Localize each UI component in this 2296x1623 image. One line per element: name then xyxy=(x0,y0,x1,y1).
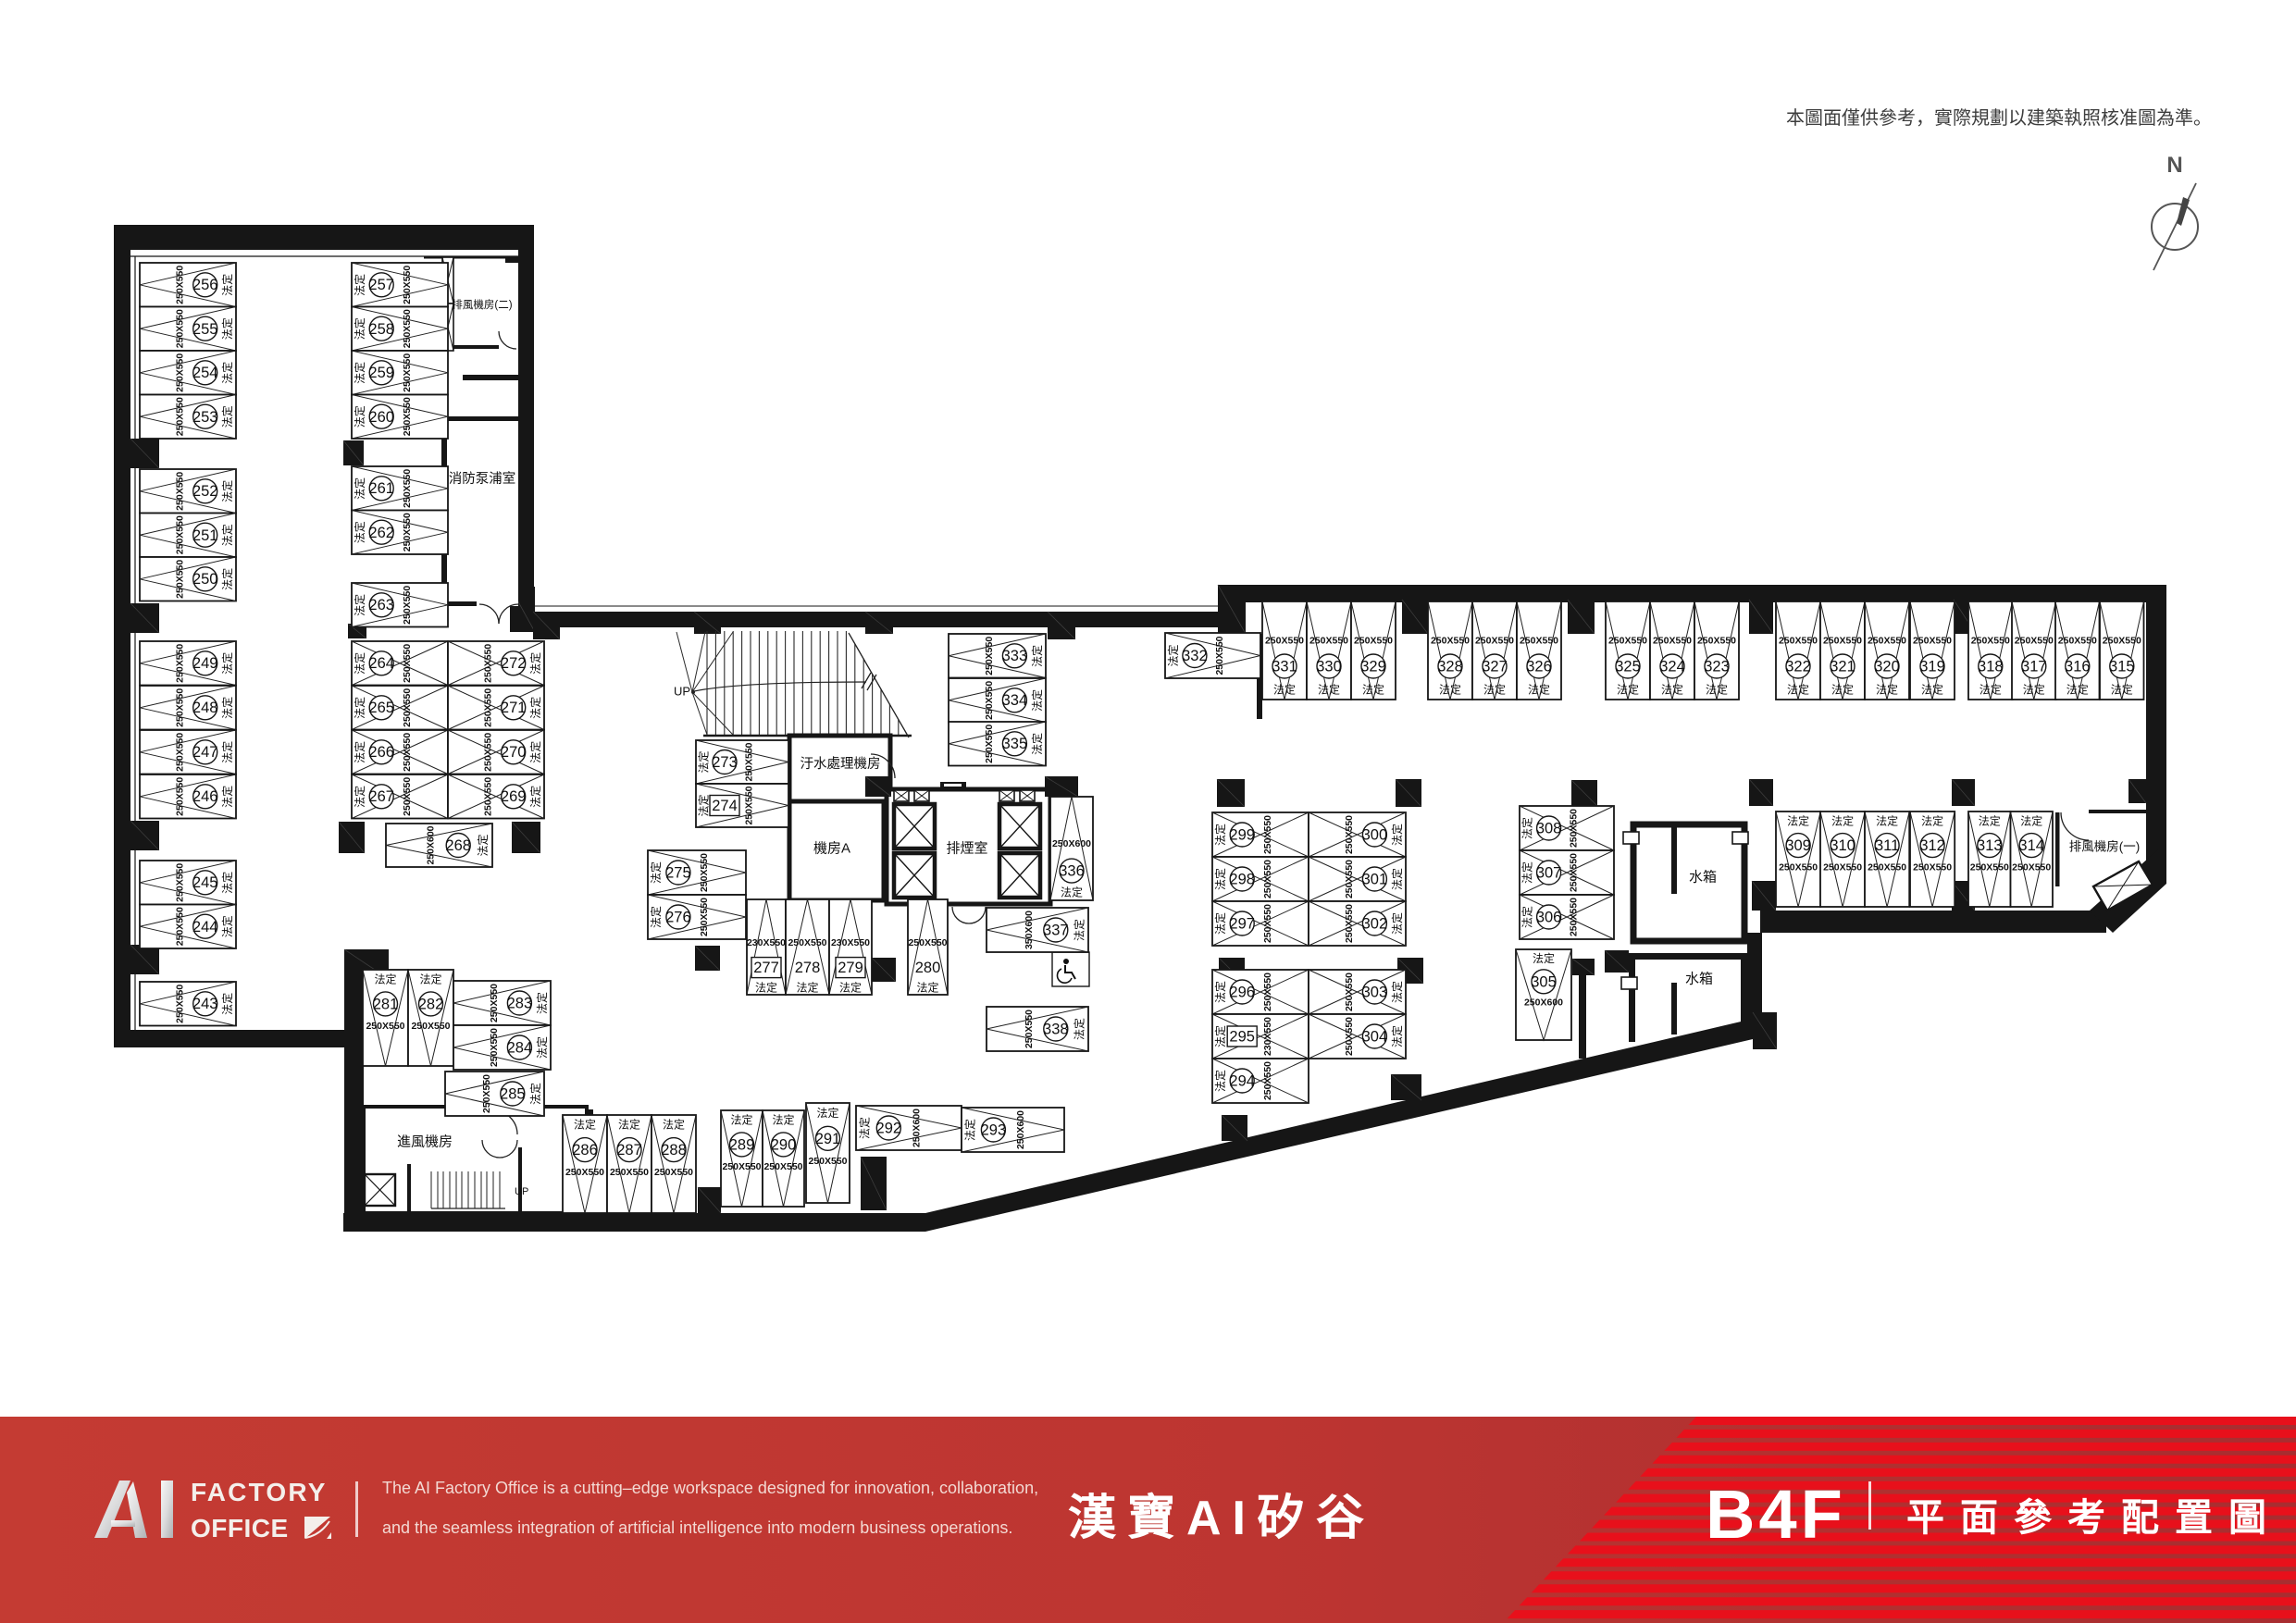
svg-text:317: 317 xyxy=(2021,659,2047,675)
svg-text:251: 251 xyxy=(192,527,218,544)
svg-text:法定: 法定 xyxy=(1273,682,1296,696)
svg-text:法定: 法定 xyxy=(1980,682,2002,696)
svg-text:法定: 法定 xyxy=(528,652,542,675)
svg-text:250X550: 250X550 xyxy=(402,688,413,727)
svg-text:法定: 法定 xyxy=(535,992,549,1014)
svg-text:法定: 法定 xyxy=(353,362,366,384)
svg-text:310: 310 xyxy=(1830,837,1855,854)
svg-text:250X550: 250X550 xyxy=(1653,635,1692,646)
svg-text:295: 295 xyxy=(1229,1029,1255,1046)
svg-text:法定: 法定 xyxy=(1390,868,1404,890)
svg-text:法定: 法定 xyxy=(220,405,234,427)
svg-text:291: 291 xyxy=(815,1131,841,1147)
svg-text:250X550: 250X550 xyxy=(402,469,413,508)
svg-text:323: 323 xyxy=(1704,659,1730,675)
svg-text:258: 258 xyxy=(368,321,394,338)
svg-text:法定: 法定 xyxy=(1876,682,1898,696)
svg-text:332: 332 xyxy=(1182,648,1208,664)
svg-text:250X550: 250X550 xyxy=(366,1021,404,1032)
svg-text:268: 268 xyxy=(445,837,471,854)
svg-text:法定: 法定 xyxy=(1831,813,1854,827)
svg-text:250X550: 250X550 xyxy=(1520,635,1558,646)
svg-text:法定: 法定 xyxy=(1061,886,1083,899)
svg-text:296: 296 xyxy=(1229,985,1255,1001)
svg-text:法定: 法定 xyxy=(353,274,366,296)
svg-text:250X550: 250X550 xyxy=(1569,853,1580,892)
svg-text:法定: 法定 xyxy=(353,477,366,500)
svg-text:250X550: 250X550 xyxy=(1262,1061,1273,1100)
svg-text:338: 338 xyxy=(1043,1022,1069,1038)
svg-text:250X550: 250X550 xyxy=(175,472,186,511)
svg-text:250: 250 xyxy=(192,571,218,588)
svg-text:法定: 法定 xyxy=(1921,682,1943,696)
svg-text:250X550: 250X550 xyxy=(984,637,995,675)
svg-text:250X550: 250X550 xyxy=(483,777,494,816)
svg-text:292: 292 xyxy=(876,1121,902,1137)
svg-text:法定: 法定 xyxy=(528,741,542,763)
svg-text:301: 301 xyxy=(1362,872,1388,888)
svg-text:266: 266 xyxy=(368,744,394,761)
svg-text:法定: 法定 xyxy=(220,317,234,340)
svg-text:316: 316 xyxy=(2065,659,2091,675)
svg-text:法定: 法定 xyxy=(1213,824,1227,846)
svg-text:254: 254 xyxy=(192,365,218,381)
svg-text:法定: 法定 xyxy=(1617,682,1639,696)
svg-text:法定: 法定 xyxy=(220,362,234,384)
svg-text:法定: 法定 xyxy=(1921,813,1943,827)
svg-text:法定: 法定 xyxy=(916,980,938,994)
svg-text:250X550: 250X550 xyxy=(402,513,413,551)
svg-text:250X550: 250X550 xyxy=(489,1028,500,1067)
svg-text:250X550: 250X550 xyxy=(402,777,413,816)
svg-text:250X550: 250X550 xyxy=(175,515,186,554)
svg-text:250X550: 250X550 xyxy=(175,777,186,816)
svg-text:法定: 法定 xyxy=(1439,682,1461,696)
svg-text:286: 286 xyxy=(572,1142,598,1158)
svg-text:350X600: 350X600 xyxy=(1024,911,1035,949)
svg-text:水箱: 水箱 xyxy=(1689,870,1717,886)
svg-text:法定: 法定 xyxy=(353,594,366,616)
svg-text:法定: 法定 xyxy=(1831,682,1854,696)
svg-text:法定: 法定 xyxy=(353,405,366,427)
svg-text:302: 302 xyxy=(1362,916,1388,933)
svg-text:250X550: 250X550 xyxy=(1344,860,1355,898)
svg-text:306: 306 xyxy=(1536,910,1562,926)
svg-text:法定: 法定 xyxy=(1030,645,1044,667)
svg-text:法定: 法定 xyxy=(220,697,234,719)
svg-text:250X550: 250X550 xyxy=(175,309,186,348)
svg-text:250X550: 250X550 xyxy=(788,937,826,948)
svg-text:250X550: 250X550 xyxy=(1475,635,1514,646)
svg-text:280: 280 xyxy=(915,960,941,976)
svg-text:325: 325 xyxy=(1615,659,1641,675)
svg-text:法定: 法定 xyxy=(858,1117,872,1139)
svg-text:機房A: 機房A xyxy=(813,841,850,857)
svg-text:法定: 法定 xyxy=(1166,644,1180,666)
svg-text:312: 312 xyxy=(1919,837,1945,854)
svg-text:247: 247 xyxy=(192,744,218,761)
svg-text:249: 249 xyxy=(192,655,218,672)
svg-text:法定: 法定 xyxy=(772,1112,794,1126)
svg-text:320: 320 xyxy=(1874,659,1900,675)
svg-text:250X550: 250X550 xyxy=(483,644,494,683)
svg-text:250X550: 250X550 xyxy=(1262,973,1273,1011)
svg-text:法定: 法定 xyxy=(1390,981,1404,1003)
svg-text:250X550: 250X550 xyxy=(808,1156,847,1167)
svg-text:法定: 法定 xyxy=(1073,919,1086,941)
svg-text:法定: 法定 xyxy=(649,861,663,884)
svg-text:法定: 法定 xyxy=(1520,817,1534,839)
svg-text:250X550: 250X550 xyxy=(1823,861,1862,873)
svg-text:250X550: 250X550 xyxy=(2058,635,2097,646)
svg-text:法定: 法定 xyxy=(1030,689,1044,712)
svg-text:法定: 法定 xyxy=(220,741,234,763)
svg-text:法定: 法定 xyxy=(220,915,234,937)
svg-text:250X550: 250X550 xyxy=(1569,898,1580,936)
svg-text:250X550: 250X550 xyxy=(984,681,995,720)
svg-text:250X550: 250X550 xyxy=(1344,904,1355,943)
svg-text:法定: 法定 xyxy=(535,1036,549,1059)
svg-text:250X550: 250X550 xyxy=(1214,636,1225,675)
svg-text:法定: 法定 xyxy=(796,980,818,994)
svg-text:256: 256 xyxy=(192,277,218,293)
svg-text:法定: 法定 xyxy=(353,521,366,543)
svg-text:250X550: 250X550 xyxy=(402,309,413,348)
svg-text:法定: 法定 xyxy=(1390,824,1404,846)
svg-text:250X550: 250X550 xyxy=(908,937,947,948)
svg-text:法定: 法定 xyxy=(220,274,234,296)
svg-text:250X550: 250X550 xyxy=(1970,861,2009,873)
svg-text:334: 334 xyxy=(1002,692,1028,709)
svg-text:法定: 法定 xyxy=(476,834,490,856)
svg-text:本圖面僅供參考，實際規劃以建築執照核准圖為準。: 本圖面僅供參考，實際規劃以建築執照核准圖為準。 xyxy=(1786,107,2212,129)
svg-text:257: 257 xyxy=(368,277,394,293)
svg-text:法定: 法定 xyxy=(1213,868,1227,890)
svg-text:298: 298 xyxy=(1229,872,1255,888)
svg-text:250X550: 250X550 xyxy=(2015,635,2054,646)
svg-text:319: 319 xyxy=(1919,659,1945,675)
svg-text:314: 314 xyxy=(2018,837,2044,854)
svg-text:消防泵浦室: 消防泵浦室 xyxy=(449,471,516,487)
svg-text:330: 330 xyxy=(1316,659,1342,675)
svg-text:263: 263 xyxy=(368,597,394,613)
svg-text:法定: 法定 xyxy=(220,568,234,590)
svg-text:250X550: 250X550 xyxy=(402,644,413,683)
svg-text:250X550: 250X550 xyxy=(175,985,186,1023)
svg-text:261: 261 xyxy=(368,480,394,497)
svg-text:250X550: 250X550 xyxy=(1697,635,1736,646)
svg-text:250X550: 250X550 xyxy=(763,1161,802,1172)
svg-text:294: 294 xyxy=(1229,1073,1255,1090)
svg-text:250X550: 250X550 xyxy=(175,560,186,599)
svg-text:287: 287 xyxy=(616,1142,642,1158)
svg-text:250X550: 250X550 xyxy=(1913,861,1952,873)
svg-text:273: 273 xyxy=(712,754,738,771)
svg-text:法定: 法定 xyxy=(528,697,542,719)
svg-text:250X600: 250X600 xyxy=(1015,1110,1026,1149)
svg-text:250X550: 250X550 xyxy=(699,898,710,936)
svg-text:311: 311 xyxy=(1875,837,1899,854)
svg-text:252: 252 xyxy=(192,483,218,500)
svg-text:法定: 法定 xyxy=(816,1106,838,1120)
svg-text:335: 335 xyxy=(1002,736,1028,752)
svg-text:250X550: 250X550 xyxy=(1024,1010,1035,1048)
svg-text:250X550: 250X550 xyxy=(402,353,413,392)
svg-text:法定: 法定 xyxy=(1213,1070,1227,1092)
svg-text:法定: 法定 xyxy=(2023,682,2045,696)
svg-text:法定: 法定 xyxy=(2111,682,2133,696)
svg-text:250X550: 250X550 xyxy=(402,266,413,304)
svg-text:250X550: 250X550 xyxy=(1569,809,1580,848)
svg-text:法定: 法定 xyxy=(2066,682,2089,696)
svg-text:279: 279 xyxy=(838,960,863,976)
svg-text:N: N xyxy=(2166,153,2182,178)
svg-text:法定: 法定 xyxy=(220,993,234,1015)
svg-text:法定: 法定 xyxy=(1390,912,1404,935)
svg-text:318: 318 xyxy=(1978,659,2004,675)
svg-text:250X550: 250X550 xyxy=(1779,635,1818,646)
svg-text:271: 271 xyxy=(501,700,527,716)
svg-text:250X550: 250X550 xyxy=(2012,861,2051,873)
svg-text:法定: 法定 xyxy=(528,1083,542,1105)
svg-text:250X550: 250X550 xyxy=(175,397,186,436)
svg-text:250X550: 250X550 xyxy=(175,733,186,772)
svg-text:法定: 法定 xyxy=(353,786,366,808)
svg-text:336: 336 xyxy=(1059,863,1085,880)
svg-text:250X550: 250X550 xyxy=(1354,635,1393,646)
svg-text:313: 313 xyxy=(1977,837,2003,854)
svg-text:250X550: 250X550 xyxy=(744,742,755,781)
svg-text:法定: 法定 xyxy=(374,972,396,985)
svg-text:269: 269 xyxy=(501,788,527,805)
svg-text:法定: 法定 xyxy=(220,786,234,808)
svg-text:250X550: 250X550 xyxy=(1913,635,1952,646)
svg-text:250X550: 250X550 xyxy=(175,353,186,392)
svg-text:250X550: 250X550 xyxy=(1868,861,1906,873)
svg-text:法定: 法定 xyxy=(1318,682,1340,696)
svg-text:排煙室: 排煙室 xyxy=(946,841,987,857)
svg-text:288: 288 xyxy=(661,1142,687,1158)
svg-text:法定: 法定 xyxy=(220,652,234,675)
svg-text:250X550: 250X550 xyxy=(610,1167,649,1178)
svg-text:250X550: 250X550 xyxy=(175,266,186,304)
svg-text:283: 283 xyxy=(507,996,533,1012)
svg-text:304: 304 xyxy=(1362,1029,1388,1046)
svg-text:250X550: 250X550 xyxy=(411,1021,450,1032)
svg-text:250X550: 250X550 xyxy=(2103,635,2141,646)
svg-text:法定: 法定 xyxy=(419,972,441,985)
svg-text:法定: 法定 xyxy=(1483,682,1506,696)
svg-text:324: 324 xyxy=(1659,659,1685,675)
svg-text:308: 308 xyxy=(1536,821,1562,837)
svg-text:法定: 法定 xyxy=(1362,682,1384,696)
svg-text:250X600: 250X600 xyxy=(425,825,436,864)
svg-text:250X550: 250X550 xyxy=(699,853,710,892)
svg-text:230X550: 230X550 xyxy=(747,937,786,948)
svg-text:250X550: 250X550 xyxy=(722,1161,761,1172)
svg-text:282: 282 xyxy=(418,996,444,1012)
svg-text:法定: 法定 xyxy=(353,317,366,340)
svg-text:250X550: 250X550 xyxy=(175,907,186,946)
svg-text:262: 262 xyxy=(368,525,394,541)
svg-text:法定: 法定 xyxy=(1213,912,1227,935)
svg-text:305: 305 xyxy=(1531,973,1557,990)
svg-text:259: 259 xyxy=(368,365,394,381)
svg-text:272: 272 xyxy=(501,655,527,672)
svg-text:245: 245 xyxy=(192,874,218,891)
svg-text:250X550: 250X550 xyxy=(1309,635,1348,646)
svg-text:248: 248 xyxy=(192,700,218,716)
svg-text:法定: 法定 xyxy=(1528,682,1550,696)
svg-text:230X550: 230X550 xyxy=(1262,1017,1273,1056)
svg-text:法定: 法定 xyxy=(1787,682,1809,696)
svg-text:250X550: 250X550 xyxy=(1431,635,1470,646)
svg-text:法定: 法定 xyxy=(1533,951,1555,965)
svg-text:法定: 法定 xyxy=(1520,861,1534,884)
svg-text:法定: 法定 xyxy=(1876,813,1898,827)
svg-text:260: 260 xyxy=(368,409,394,426)
svg-text:法定: 法定 xyxy=(220,524,234,546)
svg-text:309: 309 xyxy=(1785,837,1811,854)
svg-text:293: 293 xyxy=(981,1122,1007,1139)
svg-text:法定: 法定 xyxy=(353,697,366,719)
svg-text:法定: 法定 xyxy=(353,741,366,763)
svg-text:250X550: 250X550 xyxy=(1262,904,1273,943)
svg-text:275: 275 xyxy=(665,865,691,882)
svg-text:250X550: 250X550 xyxy=(1262,860,1273,898)
svg-text:法定: 法定 xyxy=(1706,682,1728,696)
svg-text:法定: 法定 xyxy=(962,1119,976,1141)
svg-text:UP: UP xyxy=(515,1186,528,1197)
svg-text:333: 333 xyxy=(1002,648,1028,664)
svg-text:法定: 法定 xyxy=(220,480,234,502)
svg-text:法定: 法定 xyxy=(1030,733,1044,755)
svg-text:法定: 法定 xyxy=(1213,981,1227,1003)
svg-text:250X550: 250X550 xyxy=(1971,635,2010,646)
svg-text:246: 246 xyxy=(192,788,218,805)
svg-text:排風機房(一): 排風機房(一) xyxy=(2069,840,2141,854)
svg-text:250X550: 250X550 xyxy=(1779,861,1818,873)
svg-text:250X550: 250X550 xyxy=(402,397,413,436)
svg-text:281: 281 xyxy=(373,996,399,1012)
svg-text:250X550: 250X550 xyxy=(565,1167,604,1178)
svg-text:267: 267 xyxy=(368,788,394,805)
svg-text:法定: 法定 xyxy=(697,750,711,773)
svg-text:250X550: 250X550 xyxy=(1608,635,1647,646)
svg-text:法定: 法定 xyxy=(1213,1025,1227,1047)
svg-text:255: 255 xyxy=(192,321,218,338)
svg-text:250X550: 250X550 xyxy=(175,688,186,727)
svg-text:250X550: 250X550 xyxy=(1344,973,1355,1011)
svg-text:法定: 法定 xyxy=(618,1118,640,1132)
svg-text:250X550: 250X550 xyxy=(481,1074,492,1113)
svg-text:250X550: 250X550 xyxy=(483,733,494,772)
svg-text:排風機房(二): 排風機房(二) xyxy=(452,298,512,311)
svg-text:277: 277 xyxy=(753,960,779,976)
svg-text:300: 300 xyxy=(1362,827,1388,844)
svg-text:250X550: 250X550 xyxy=(984,725,995,763)
svg-text:290: 290 xyxy=(771,1136,797,1153)
svg-text:270: 270 xyxy=(501,744,527,761)
svg-text:230X550: 230X550 xyxy=(831,937,870,948)
svg-text:299: 299 xyxy=(1229,827,1255,844)
svg-text:284: 284 xyxy=(507,1040,533,1057)
svg-text:303: 303 xyxy=(1362,985,1388,1001)
svg-text:253: 253 xyxy=(192,409,218,426)
svg-text:328: 328 xyxy=(1437,659,1463,675)
svg-text:250X550: 250X550 xyxy=(175,644,186,683)
svg-text:244: 244 xyxy=(192,919,218,935)
svg-text:法定: 法定 xyxy=(1661,682,1683,696)
svg-text:法定: 法定 xyxy=(1520,906,1534,928)
svg-text:289: 289 xyxy=(729,1136,755,1153)
svg-text:250X550: 250X550 xyxy=(1868,635,1906,646)
svg-text:法定: 法定 xyxy=(755,980,777,994)
svg-text:307: 307 xyxy=(1536,865,1562,882)
svg-text:264: 264 xyxy=(368,655,394,672)
svg-text:265: 265 xyxy=(368,700,394,716)
svg-text:法定: 法定 xyxy=(1787,813,1809,827)
svg-text:285: 285 xyxy=(500,1086,526,1103)
svg-text:250X550: 250X550 xyxy=(654,1167,693,1178)
svg-text:274: 274 xyxy=(712,798,738,814)
svg-text:250X550: 250X550 xyxy=(744,786,755,824)
svg-text:UP: UP xyxy=(674,685,690,699)
svg-text:243: 243 xyxy=(192,996,218,1012)
svg-text:250X550: 250X550 xyxy=(402,733,413,772)
svg-text:法定: 法定 xyxy=(2020,813,2042,827)
svg-text:250X550: 250X550 xyxy=(1265,635,1304,646)
svg-text:326: 326 xyxy=(1526,659,1552,675)
svg-text:276: 276 xyxy=(665,910,691,926)
svg-text:法定: 法定 xyxy=(730,1112,752,1126)
svg-text:337: 337 xyxy=(1043,923,1069,939)
svg-text:法定: 法定 xyxy=(1979,813,2001,827)
svg-text:水箱: 水箱 xyxy=(1685,972,1713,987)
svg-text:297: 297 xyxy=(1229,916,1255,933)
svg-text:法定: 法定 xyxy=(574,1118,596,1132)
svg-text:250X550: 250X550 xyxy=(483,688,494,727)
svg-text:法定: 法定 xyxy=(528,786,542,808)
svg-text:331: 331 xyxy=(1272,659,1297,675)
svg-text:法定: 法定 xyxy=(1390,1025,1404,1047)
svg-text:250X550: 250X550 xyxy=(1344,1017,1355,1056)
svg-text:250X550: 250X550 xyxy=(175,863,186,902)
svg-text:法定: 法定 xyxy=(697,794,711,816)
svg-text:汙水處理機房: 汙水處理機房 xyxy=(800,756,881,772)
svg-text:315: 315 xyxy=(2109,659,2135,675)
svg-text:法定: 法定 xyxy=(220,872,234,894)
svg-text:法定: 法定 xyxy=(839,980,862,994)
svg-text:進風機房: 進風機房 xyxy=(397,1134,453,1150)
svg-text:278: 278 xyxy=(795,960,821,976)
svg-text:250X550: 250X550 xyxy=(1262,815,1273,854)
svg-text:329: 329 xyxy=(1360,659,1386,675)
svg-text:250X550: 250X550 xyxy=(1823,635,1862,646)
svg-text:250X550: 250X550 xyxy=(489,984,500,1022)
svg-text:321: 321 xyxy=(1830,659,1855,675)
svg-text:250X600: 250X600 xyxy=(912,1109,923,1147)
svg-text:250X600: 250X600 xyxy=(1052,838,1091,849)
svg-text:250X550: 250X550 xyxy=(1344,815,1355,854)
svg-text:250X550: 250X550 xyxy=(402,586,413,625)
svg-text:法定: 法定 xyxy=(663,1118,685,1132)
svg-text:250X600: 250X600 xyxy=(1524,997,1563,1008)
svg-text:法定: 法定 xyxy=(353,652,366,675)
svg-text:法定: 法定 xyxy=(649,906,663,928)
svg-text:法定: 法定 xyxy=(1073,1018,1086,1040)
svg-text:322: 322 xyxy=(1785,659,1811,675)
